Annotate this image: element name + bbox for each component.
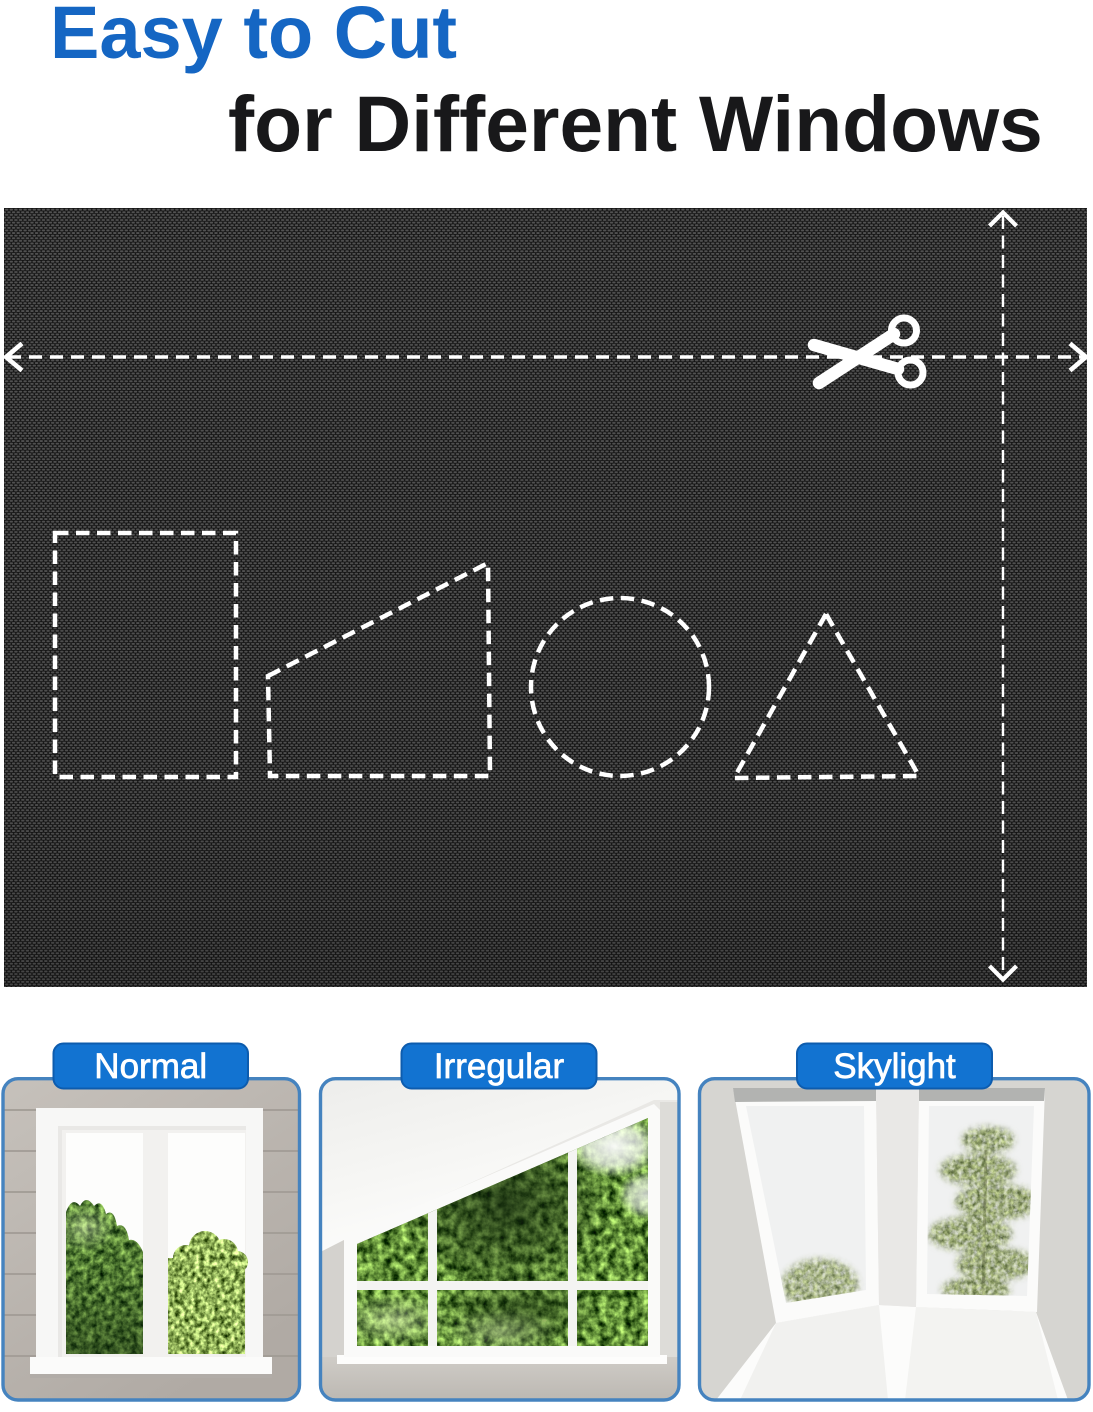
svg-text:for Different Windows: for Different Windows [228, 80, 1043, 168]
svg-text:Easy to Cut: Easy to Cut [50, 0, 457, 74]
svg-text:Irregular: Irregular [434, 1047, 565, 1086]
svg-text:Normal: Normal [94, 1047, 207, 1086]
svg-text:Skylight: Skylight [833, 1047, 956, 1086]
